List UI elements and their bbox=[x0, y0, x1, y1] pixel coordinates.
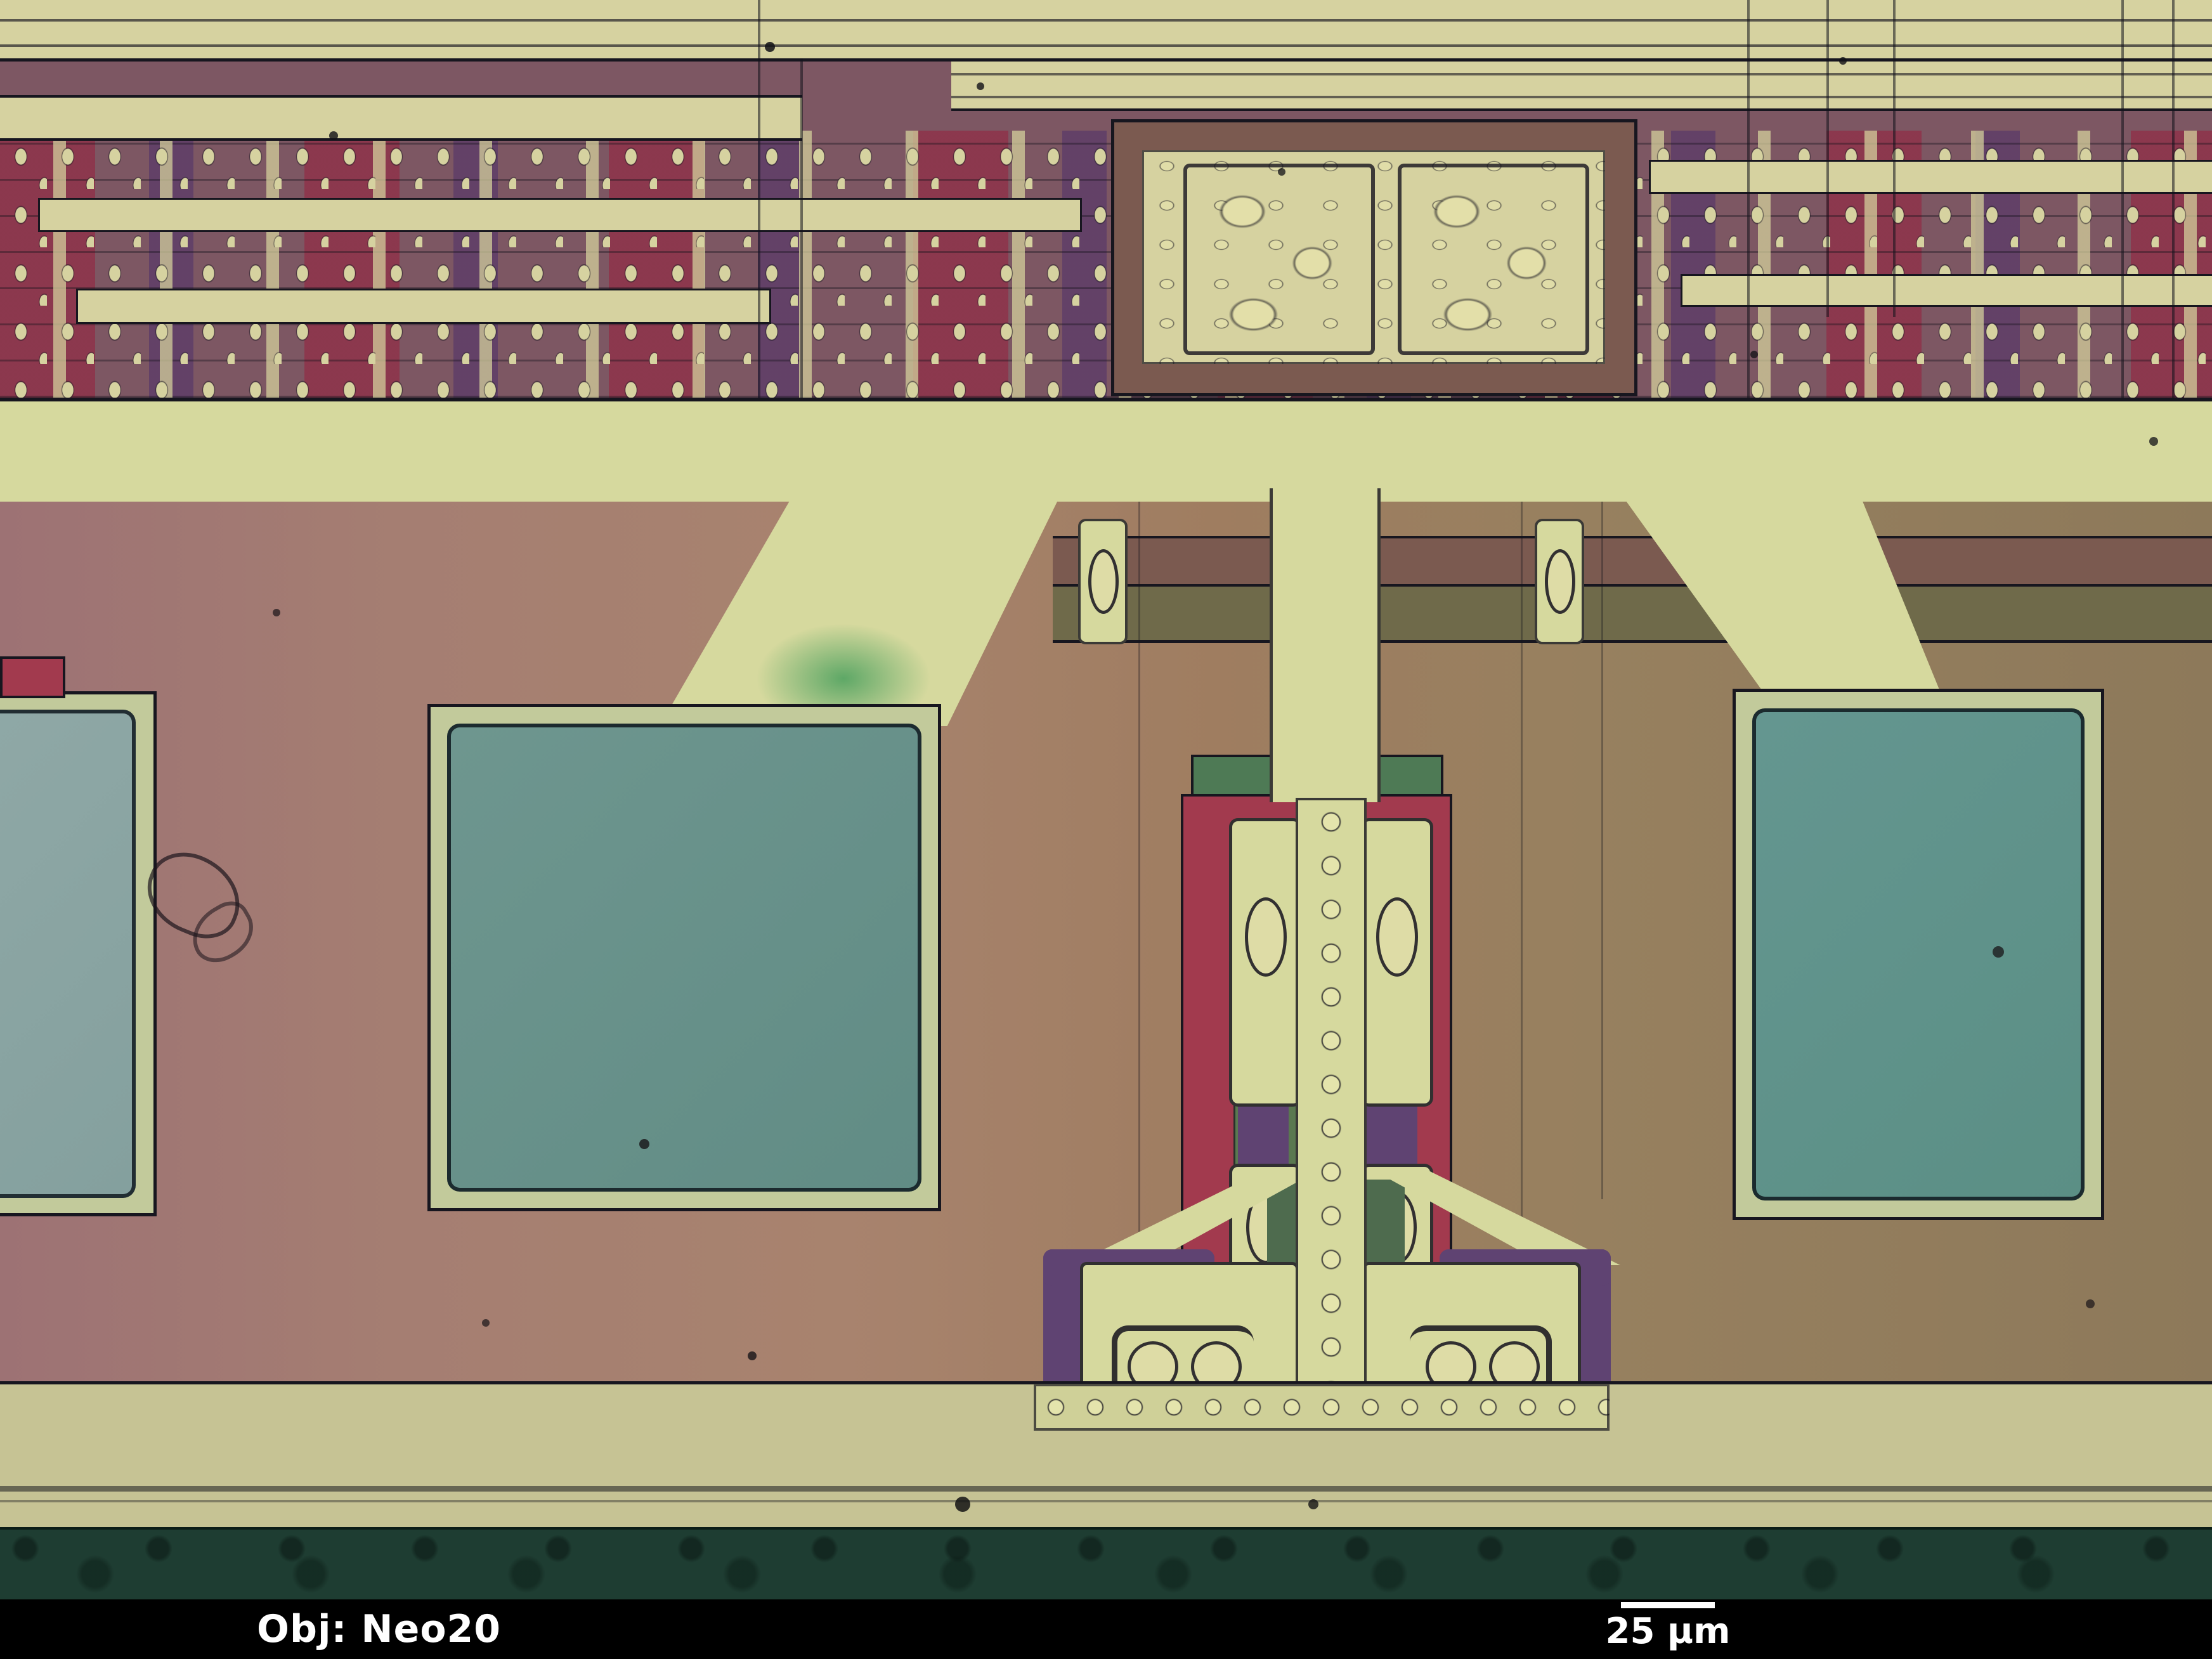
contact-tab-right bbox=[1535, 519, 1584, 644]
bond-window-center-rim bbox=[427, 704, 941, 1211]
bond-window-right-rim bbox=[1733, 689, 2104, 1220]
bond-window-left-rim bbox=[0, 691, 157, 1216]
vertical-trace bbox=[1747, 0, 1750, 398]
scale-bar-label: 25 µm bbox=[1604, 1611, 1731, 1652]
contact-oval bbox=[1545, 549, 1575, 614]
metal-leg-right bbox=[1360, 818, 1433, 1107]
contact-oval bbox=[1245, 897, 1287, 977]
isolation-well-structure bbox=[1111, 119, 1637, 396]
info-bar: Obj: Neo20 25 µm bbox=[0, 1599, 2212, 1659]
inner-square-left bbox=[1183, 164, 1375, 355]
metal-trace bbox=[38, 198, 1082, 232]
diffusion-boundary-line bbox=[1138, 502, 1140, 1237]
buried-trace-olive bbox=[1053, 587, 2212, 643]
dark-field-strip bbox=[0, 1527, 2212, 1602]
right-metal-bus-stripes bbox=[951, 62, 2212, 111]
band-divider-line bbox=[0, 1500, 2212, 1502]
metal-trace bbox=[76, 289, 771, 324]
metal-stem bbox=[1270, 488, 1381, 802]
dust-specks bbox=[0, 0, 8, 8]
left-metal-rail bbox=[0, 95, 802, 141]
diffusion-boundary-line bbox=[1601, 502, 1603, 1199]
top-metal-bus-stripes bbox=[0, 0, 2212, 62]
inner-square-right bbox=[1398, 164, 1589, 355]
metal-leg-left bbox=[1229, 818, 1302, 1107]
scale-bar-line bbox=[1621, 1602, 1715, 1608]
contact-oval bbox=[1088, 549, 1119, 614]
objective-label: Obj: Neo20 bbox=[257, 1607, 501, 1651]
isolation-well-interior bbox=[1142, 150, 1605, 364]
vertical-trace bbox=[800, 58, 803, 400]
implant-fragment bbox=[0, 656, 65, 698]
via-row bbox=[1034, 1384, 1610, 1431]
vertical-trace bbox=[758, 0, 760, 400]
power-rail-band bbox=[0, 398, 2212, 505]
logic-circuit-band bbox=[0, 0, 2212, 398]
diffusion-boundary-line bbox=[1521, 502, 1523, 1237]
bond-window-right bbox=[1752, 708, 2085, 1200]
contact-oval bbox=[1376, 897, 1418, 977]
vertical-trace bbox=[1893, 0, 1896, 317]
ic-die-micrograph: Obj: Neo20 25 µm bbox=[0, 0, 2212, 1659]
metal-trace bbox=[1681, 274, 2212, 307]
vertical-trace bbox=[1826, 0, 1829, 317]
via-chain-column bbox=[1296, 798, 1367, 1434]
contact-tab-left bbox=[1078, 519, 1128, 644]
bond-window-left bbox=[0, 710, 136, 1198]
buried-trace-brown bbox=[1053, 536, 2212, 587]
metal-trace bbox=[1649, 160, 2212, 194]
bond-window-center bbox=[447, 724, 921, 1192]
band-divider-line bbox=[0, 1486, 2212, 1492]
